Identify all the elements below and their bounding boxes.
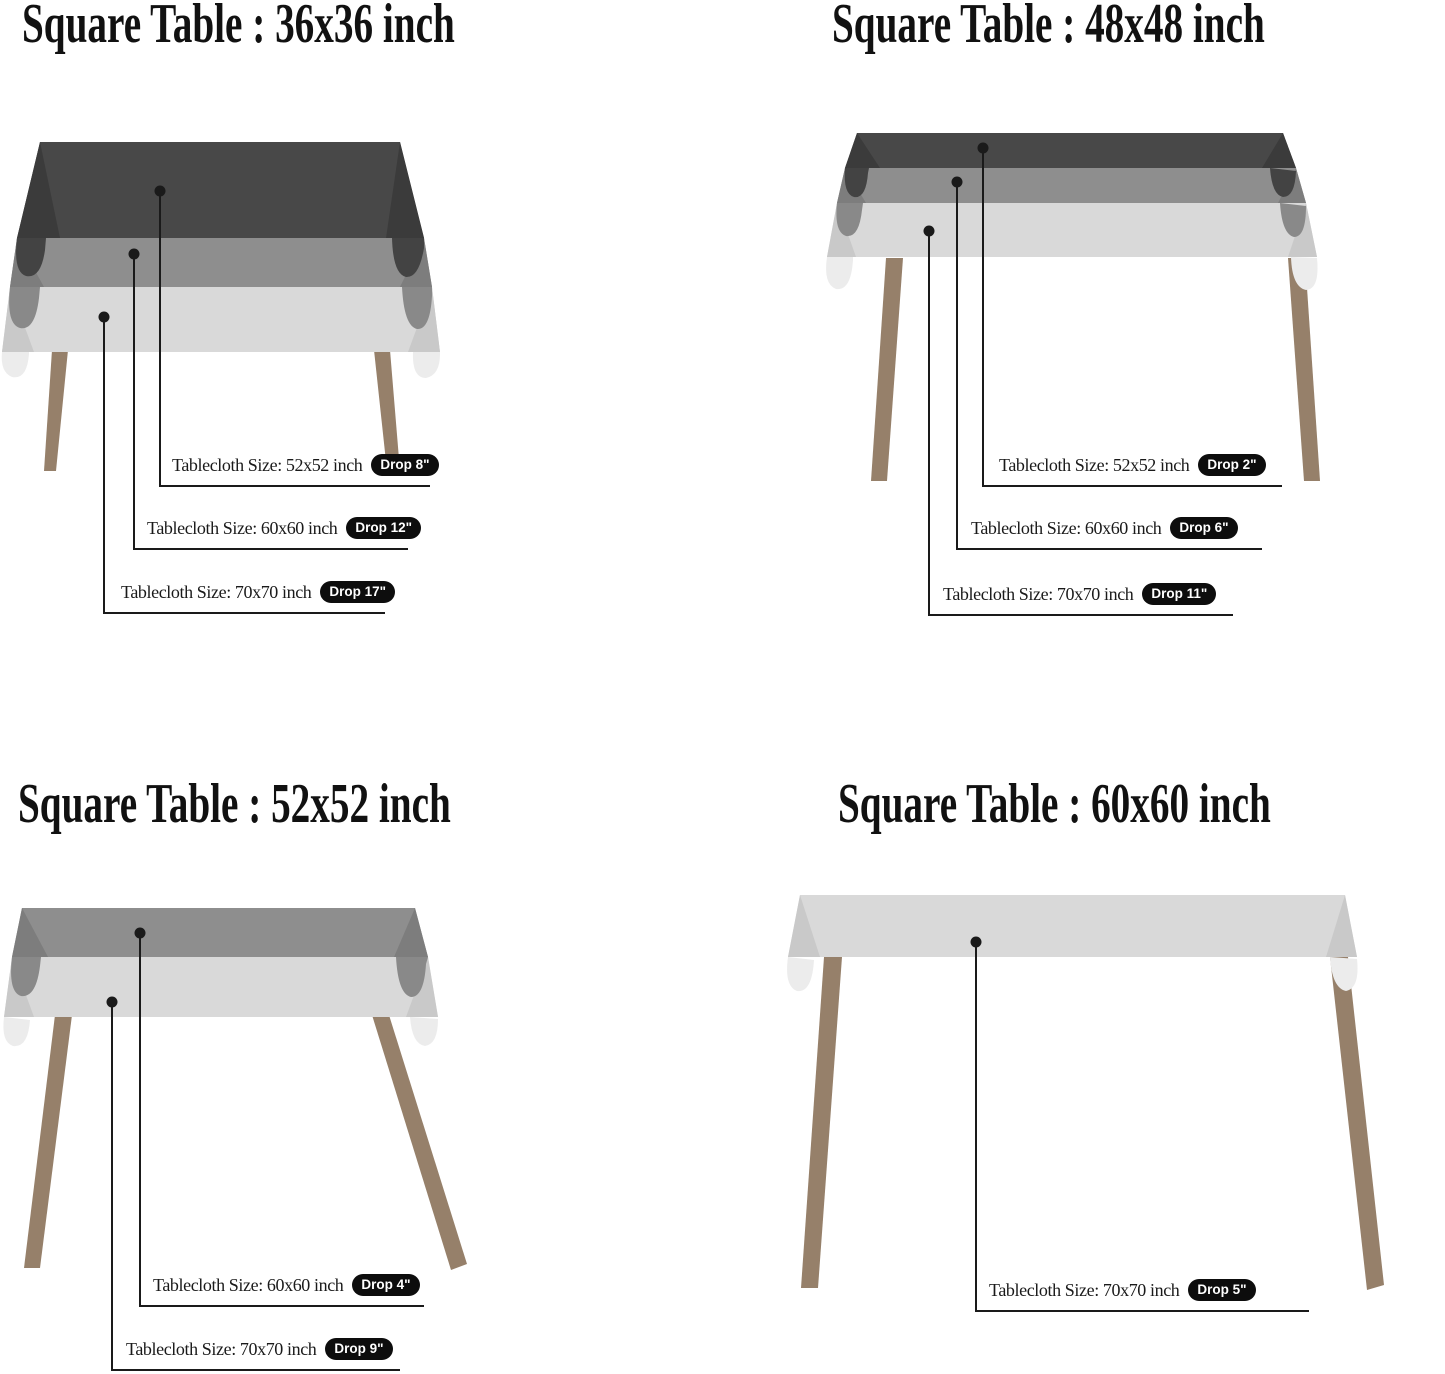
tablecloth-52x52-dark-layer <box>17 142 424 238</box>
callout-row: Tablecloth Size: 60x60 inch Drop 12" <box>147 512 421 544</box>
tablecloth-size-label: Tablecloth Size: 52x52 inch <box>172 455 362 476</box>
tablecloth-size-label: Tablecloth Size: 60x60 inch <box>971 518 1161 539</box>
cloth-drape <box>787 957 814 991</box>
tablecloth-size-label: Tablecloth Size: 70x70 inch <box>943 584 1133 605</box>
callout-row: Tablecloth Size: 52x52 inch Drop 2" <box>999 449 1266 481</box>
drop-badge: Drop 17" <box>320 581 395 603</box>
callout-dot-70x70 <box>924 226 935 237</box>
tablecloth-52x52-dark-layer <box>845 133 1296 168</box>
tablecloth-60x60-mid-layer <box>12 908 428 957</box>
section-title-60x60: Square Table : 60x60 inch <box>838 776 1271 832</box>
drop-badge: Drop 12" <box>346 517 421 539</box>
drop-badge: Drop 8" <box>371 454 438 476</box>
drop-badge: Drop 11" <box>1142 583 1216 605</box>
cloth-drape <box>413 352 440 378</box>
table-leg-right <box>1330 957 1384 1290</box>
callout-line-70x70 <box>929 231 1233 615</box>
callout-dot-60x60 <box>952 177 963 188</box>
callout-row: Tablecloth Size: 60x60 inch Drop 6" <box>971 512 1238 544</box>
callout-dot-52x52 <box>978 143 989 154</box>
tablecloth-70x70-light-layer <box>4 957 438 1017</box>
drop-badge: Drop 9" <box>325 1338 392 1360</box>
callout-dot-70x70 <box>99 312 110 323</box>
size-guide-illustration <box>0 0 1445 1374</box>
table-leg-left <box>24 1015 72 1268</box>
callout-line-70x70 <box>976 942 1309 1311</box>
table-leg-right <box>372 1015 467 1270</box>
callout-row: Tablecloth Size: 70x70 inch Drop 9" <box>126 1333 393 1365</box>
tablecloth-size-label: Tablecloth Size: 60x60 inch <box>153 1275 343 1296</box>
cloth-drape <box>3 1017 30 1046</box>
callout-row: Tablecloth Size: 70x70 inch Drop 5" <box>989 1274 1256 1306</box>
callout-row: Tablecloth Size: 70x70 inch Drop 11" <box>943 578 1216 610</box>
callout-row: Tablecloth Size: 70x70 inch Drop 17" <box>121 576 395 608</box>
cloth-drape <box>410 1017 438 1046</box>
cloth-drape <box>826 257 853 289</box>
tablecloth-size-label: Tablecloth Size: 70x70 inch <box>126 1339 316 1360</box>
section-title-48x48: Square Table : 48x48 inch <box>832 0 1265 52</box>
tablecloth-70x70-light-layer <box>827 203 1317 257</box>
callout-dot-70x70 <box>107 997 118 1008</box>
table-leg-left <box>44 350 68 471</box>
tablecloth-70x70-light-layer <box>2 287 440 352</box>
table-leg-left <box>801 957 842 1288</box>
tablecloth-60x60-mid-layer <box>10 238 432 287</box>
drop-badge: Drop 5" <box>1188 1279 1255 1301</box>
tablecloth-60x60-mid-layer <box>837 168 1306 203</box>
cloth-drape <box>2 352 29 377</box>
tablecloth-70x70-light-layer <box>788 895 1357 957</box>
tablecloth-size-label: Tablecloth Size: 70x70 inch <box>989 1280 1179 1301</box>
tablecloth-size-guide: Square Table : 36x36 inch Square Table :… <box>0 0 1445 1374</box>
table-leg-left <box>871 258 903 481</box>
callout-row: Tablecloth Size: 52x52 inch Drop 8" <box>172 449 439 481</box>
section-title-36x36: Square Table : 36x36 inch <box>22 0 455 52</box>
tablecloth-size-label: Tablecloth Size: 60x60 inch <box>147 518 337 539</box>
callout-dot-60x60 <box>129 249 140 260</box>
table-leg-right <box>1288 258 1320 481</box>
callout-dot-70x70 <box>971 937 982 948</box>
callout-row: Tablecloth Size: 60x60 inch Drop 4" <box>153 1269 420 1301</box>
callout-line-70x70 <box>112 1002 400 1370</box>
drop-badge: Drop 6" <box>1170 517 1237 539</box>
tablecloth-size-label: Tablecloth Size: 52x52 inch <box>999 455 1189 476</box>
callout-dot-60x60 <box>135 928 146 939</box>
callout-dot-52x52 <box>155 186 166 197</box>
tablecloth-size-label: Tablecloth Size: 70x70 inch <box>121 582 311 603</box>
drop-badge: Drop 2" <box>1198 454 1265 476</box>
table-illustration-60x60 <box>787 895 1384 1311</box>
section-title-52x52: Square Table : 52x52 inch <box>18 776 451 832</box>
drop-badge: Drop 4" <box>352 1274 419 1296</box>
